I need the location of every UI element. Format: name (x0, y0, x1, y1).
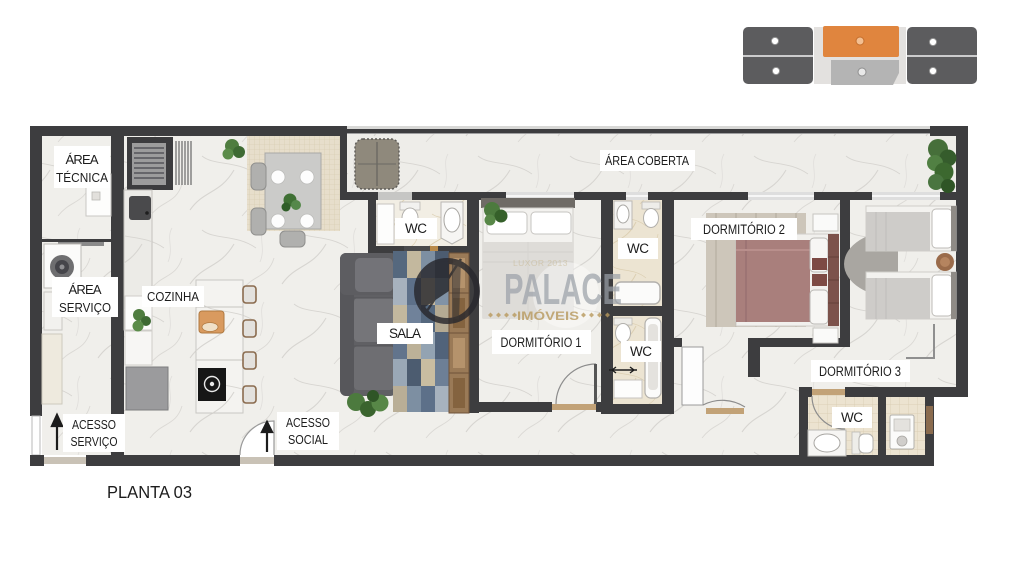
svg-text:PALACE: PALACE (504, 265, 622, 314)
svg-text:PLANTA 03: PLANTA 03 (107, 482, 192, 502)
svg-text:ÁREA COBERTA: ÁREA COBERTA (605, 153, 689, 168)
svg-text:DORMITÓRIO 2: DORMITÓRIO 2 (703, 222, 785, 237)
svg-text:IMÓVEIS: IMÓVEIS (517, 308, 579, 323)
svg-text:ÁREA: ÁREA (69, 282, 102, 297)
svg-text:COZINHA: COZINHA (147, 289, 199, 304)
svg-text:SOCIAL: SOCIAL (288, 433, 328, 447)
svg-text:TÉCNICA: TÉCNICA (56, 170, 108, 185)
svg-text:SERVIÇO: SERVIÇO (71, 435, 118, 449)
svg-text:SALA: SALA (389, 326, 421, 341)
svg-text:ÁREA: ÁREA (66, 152, 99, 167)
svg-text:ACESSO: ACESSO (286, 416, 330, 430)
svg-text:ACESSO: ACESSO (72, 418, 116, 432)
svg-text:SERVIÇO: SERVIÇO (59, 300, 111, 315)
svg-text:WC: WC (630, 344, 652, 359)
svg-text:WC: WC (841, 410, 863, 425)
svg-text:DORMITÓRIO 1: DORMITÓRIO 1 (501, 335, 582, 350)
svg-text:WC: WC (627, 241, 649, 256)
svg-text:WC: WC (405, 221, 427, 236)
svg-text:DORMITÓRIO 3: DORMITÓRIO 3 (819, 364, 901, 379)
